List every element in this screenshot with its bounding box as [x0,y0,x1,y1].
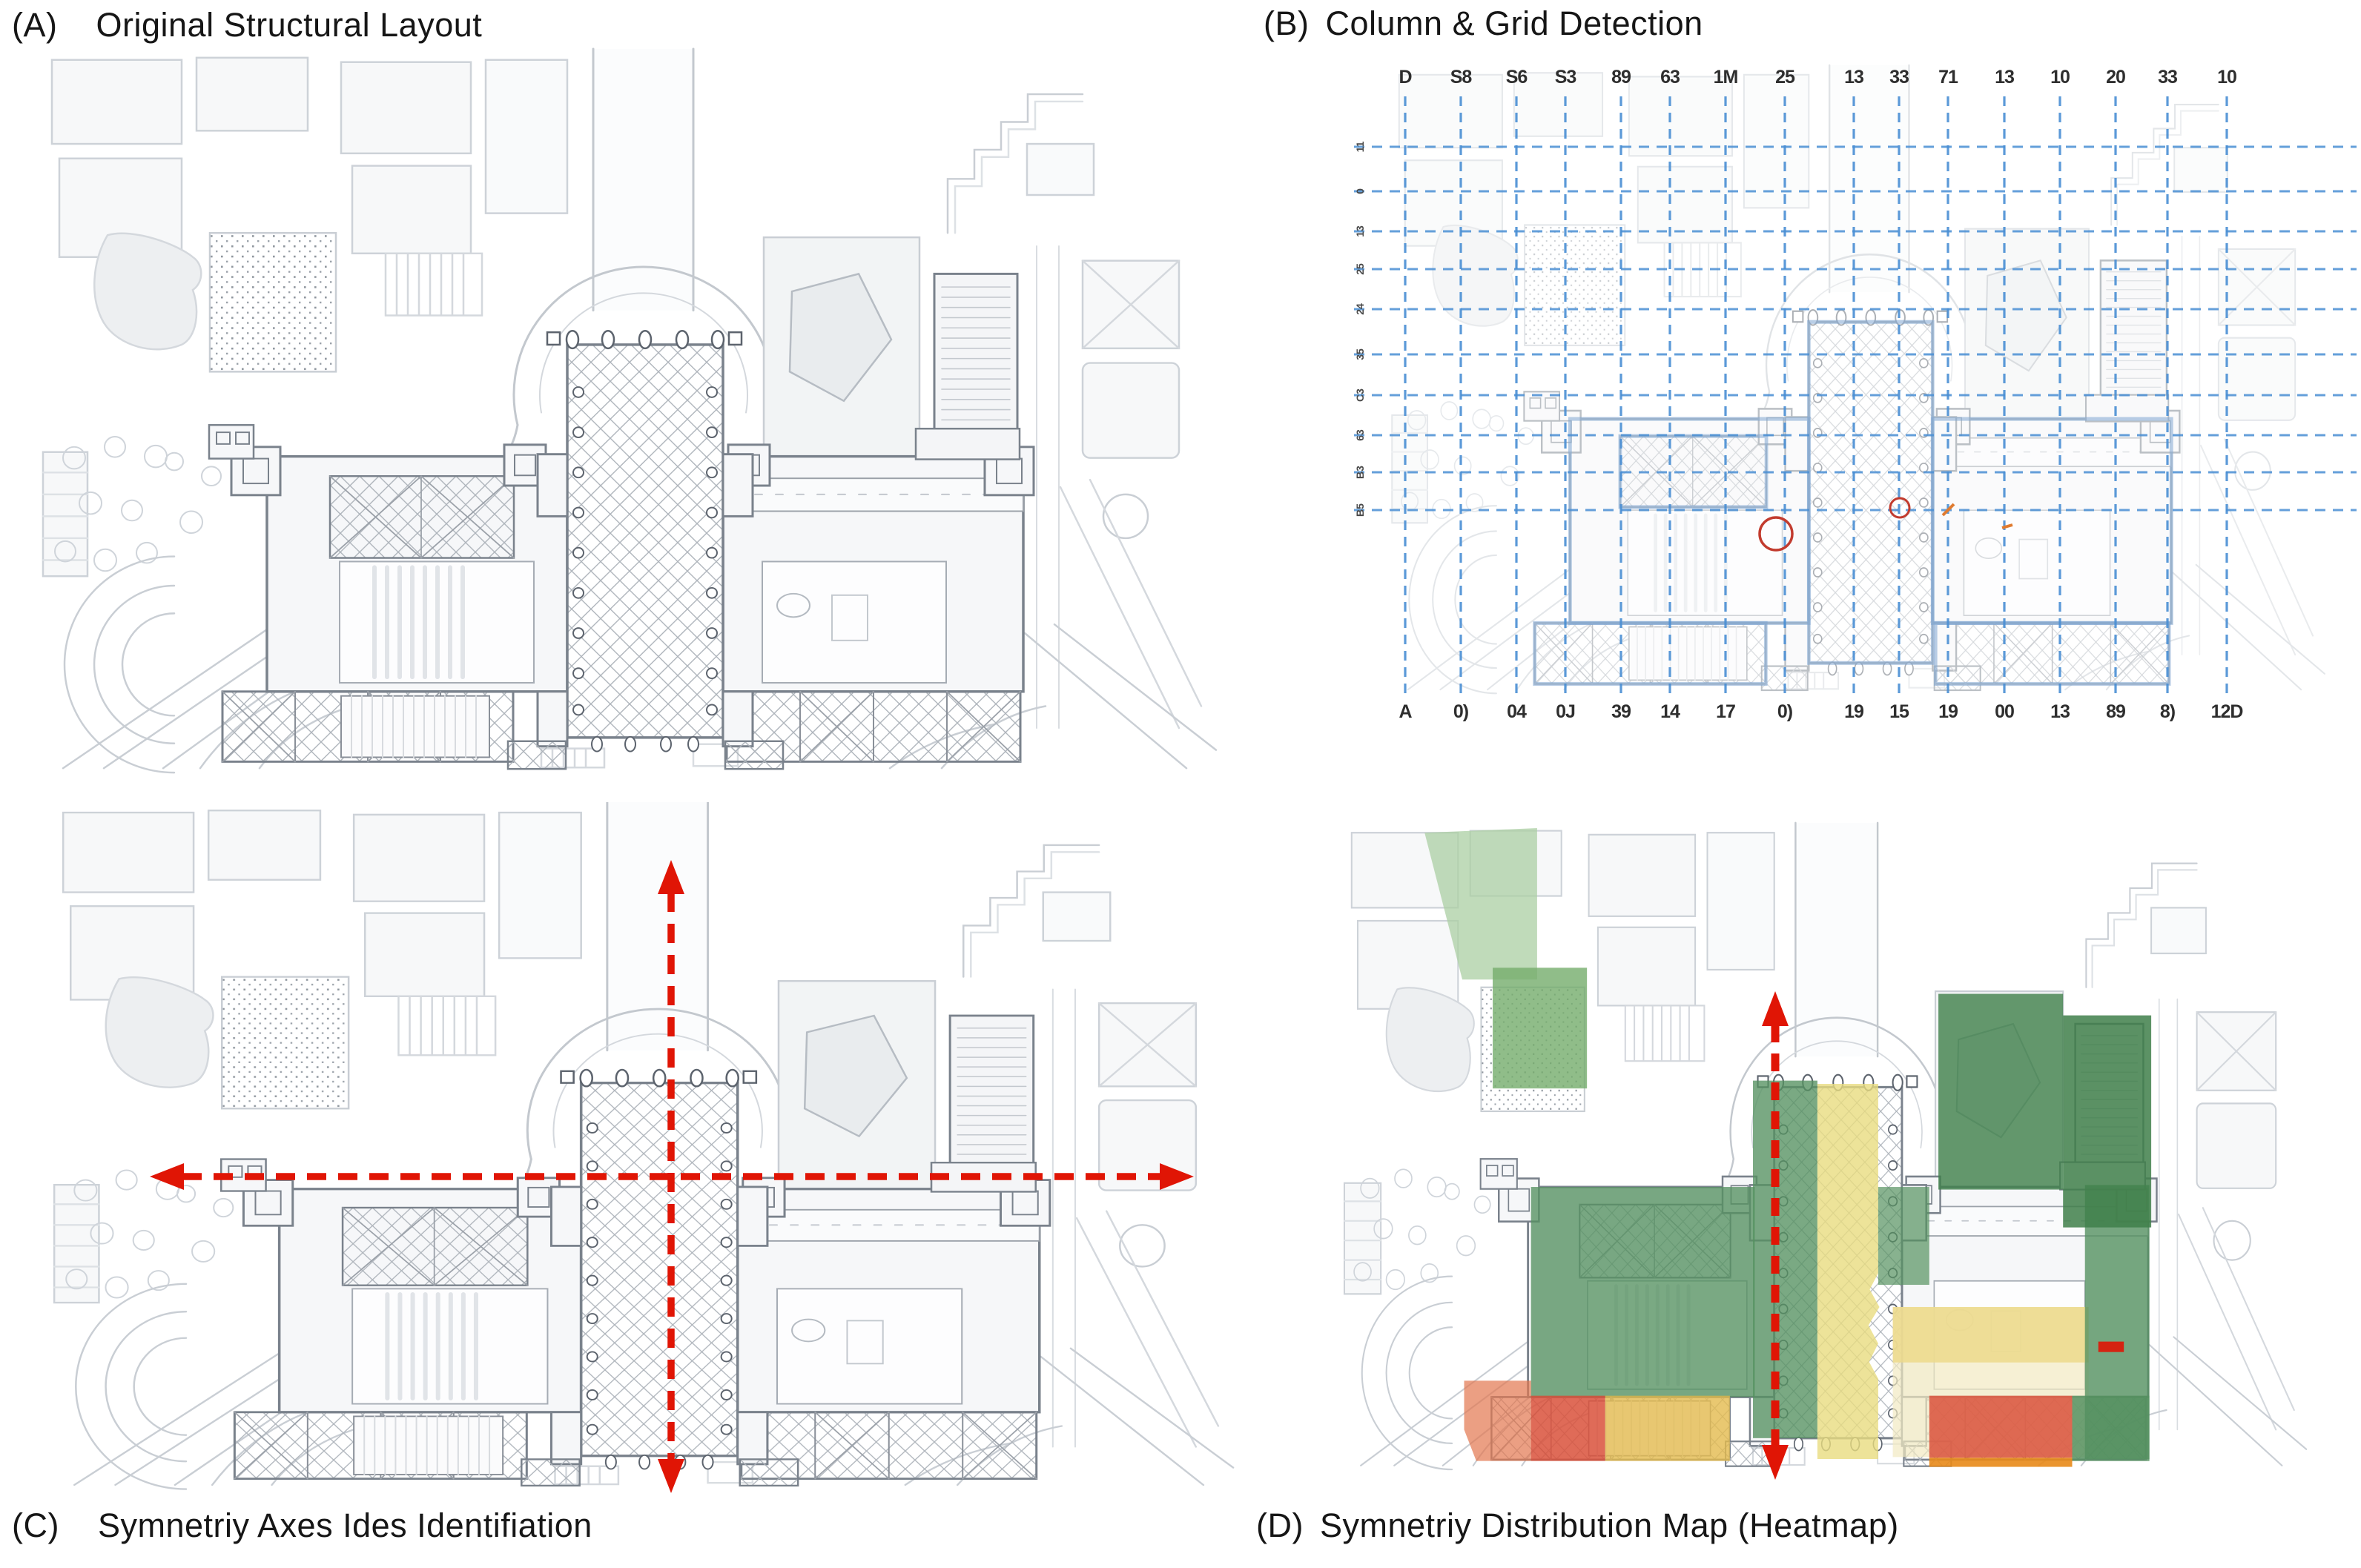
caption-a-title: Original Structural Layout [96,6,483,44]
grid-column-label-top: S8 [1450,67,1473,87]
grid-column-label-top: 63 [1660,67,1680,87]
grid-column-label-top: 33 [1889,67,1909,87]
heat-region-south-west-chapel [1531,1396,1605,1461]
grid-column-label-bottom: 12D [2211,701,2243,722]
grid-column-label-top: 10 [2050,67,2070,87]
grid-row-label: 24 [1354,303,1366,315]
heat-region-south-east-strip [1929,1458,2073,1466]
panel-a-plan-svg [22,43,1231,784]
heat-region-north-gallery-east [1878,1187,1929,1285]
figure-page: { "figure": { "panels": { "A": { "tag": … [0,0,2361,1568]
panel-b-grid-svg: 11013252435C363B3B5DAS80)S604S30J8939631… [1350,44,2361,738]
grid-column-label-top: 13 [1995,67,2014,87]
heat-region-south-east-corner [2073,1396,2150,1461]
grid-row-label: B5 [1354,503,1366,517]
grid-row-label: 63 [1354,429,1366,441]
grid-column-label-top: 20 [2106,67,2125,87]
grid-column-label-bottom: 0) [1453,701,1469,722]
grid-column-label-top: 71 [1938,67,1958,87]
heat-region-south-east-chapel [1929,1396,2073,1458]
grid-column-label-bottom: 04 [1507,701,1527,722]
caption-panel-b: (B) Column & Grid Detection [1264,4,1703,43]
grid-column-label-bottom: 0) [1777,701,1793,722]
grid-column-label-bottom: 13 [2050,701,2070,722]
grid-column-label-top: 13 [1844,67,1863,87]
grid-column-label-top: S3 [1555,67,1576,87]
panel-original-layout [22,43,1231,784]
grid-column-label-bottom: 14 [1660,701,1680,722]
heat-region-west-wing [1531,1187,1755,1397]
grid-column-label-top: 89 [1611,67,1631,87]
heat-region-east-court-upper [1893,1307,2089,1363]
caption-a-tag: (A) [12,6,58,44]
grid-column-label-top: 33 [2158,67,2177,87]
panel-grid-detection: 11013252435C363B3B5DAS80)S604S30J8939631… [1350,44,2361,738]
grid-row-label: B3 [1354,466,1366,479]
heat-region-nave-west-aisle [1753,1081,1817,1438]
panel-symmetry-axes [22,802,1261,1499]
grid-column-label-top: 1M [1714,67,1738,87]
grid-column-label-top: 10 [2217,67,2236,87]
caption-panel-d: (D) Symnetriy Distribution Map (Heatmap) [1256,1506,1899,1545]
grid-column-label-bottom: 8) [2160,701,2176,722]
grid-column-label-bottom: 00 [1995,701,2014,722]
grid-row-label: 0 [1354,188,1366,194]
heat-region-small-red-mark [2099,1342,2124,1352]
caption-b-tag: (B) [1264,4,1310,43]
grid-row-label: 25 [1354,263,1366,275]
axis-arrowhead-down [658,1459,684,1493]
axis-arrowhead-left [150,1163,184,1190]
axis-arrowhead-up [1762,991,1789,1026]
caption-panel-c: (C) Symnetriy Axes Ides Identifiation [12,1506,592,1545]
grid-column-label-top: D [1399,67,1411,87]
grid-column-label-bottom: 19 [1938,701,1958,722]
caption-c-title: Symnetriy Axes Ides Identifiation [98,1506,592,1545]
grid-column-label-bottom: 17 [1716,701,1735,722]
grid-row-label: 11 [1354,141,1366,152]
caption-c-tag: (C) [12,1506,59,1545]
heatmap-overlay [1424,828,2151,1467]
grid-row-label: C3 [1354,388,1366,402]
grid-column-label-top: 25 [1775,67,1795,87]
panel-c-axes-svg [22,802,1261,1499]
grid-column-label-bottom: 19 [1844,701,1863,722]
caption-d-title: Symnetriy Distribution Map (Heatmap) [1320,1506,1899,1545]
heat-region-nave-central-strip [1817,1084,1880,1459]
heat-region-north-east-block [1938,994,2063,1190]
heat-region-south-west-outer [1465,1380,1531,1461]
caption-b-title: Column & Grid Detection [1326,4,1703,43]
grid-column-label-bottom: 15 [1889,701,1909,722]
grid-column-label-bottom: 0J [1556,701,1575,722]
grid-column-label-top: S6 [1506,67,1528,87]
panel-d-heatmap-svg [1246,802,2361,1498]
grid-row-label: 35 [1354,348,1366,360]
grid-column-label-bottom: 39 [1611,701,1631,722]
caption-panel-a: (A) Original Structural Layout [12,6,482,44]
panel-symmetry-heatmap [1246,802,2361,1498]
grid-row-label: 13 [1354,225,1366,237]
heat-region-south-west-hall [1605,1396,1730,1461]
grid-column-label-bottom: 89 [2106,701,2125,722]
heat-region-north-east-annex [2063,1016,2151,1228]
grid-column-label-bottom: A [1399,701,1412,722]
caption-d-tag: (D) [1256,1506,1304,1545]
heat-region-garden-speckled [1493,967,1587,1088]
